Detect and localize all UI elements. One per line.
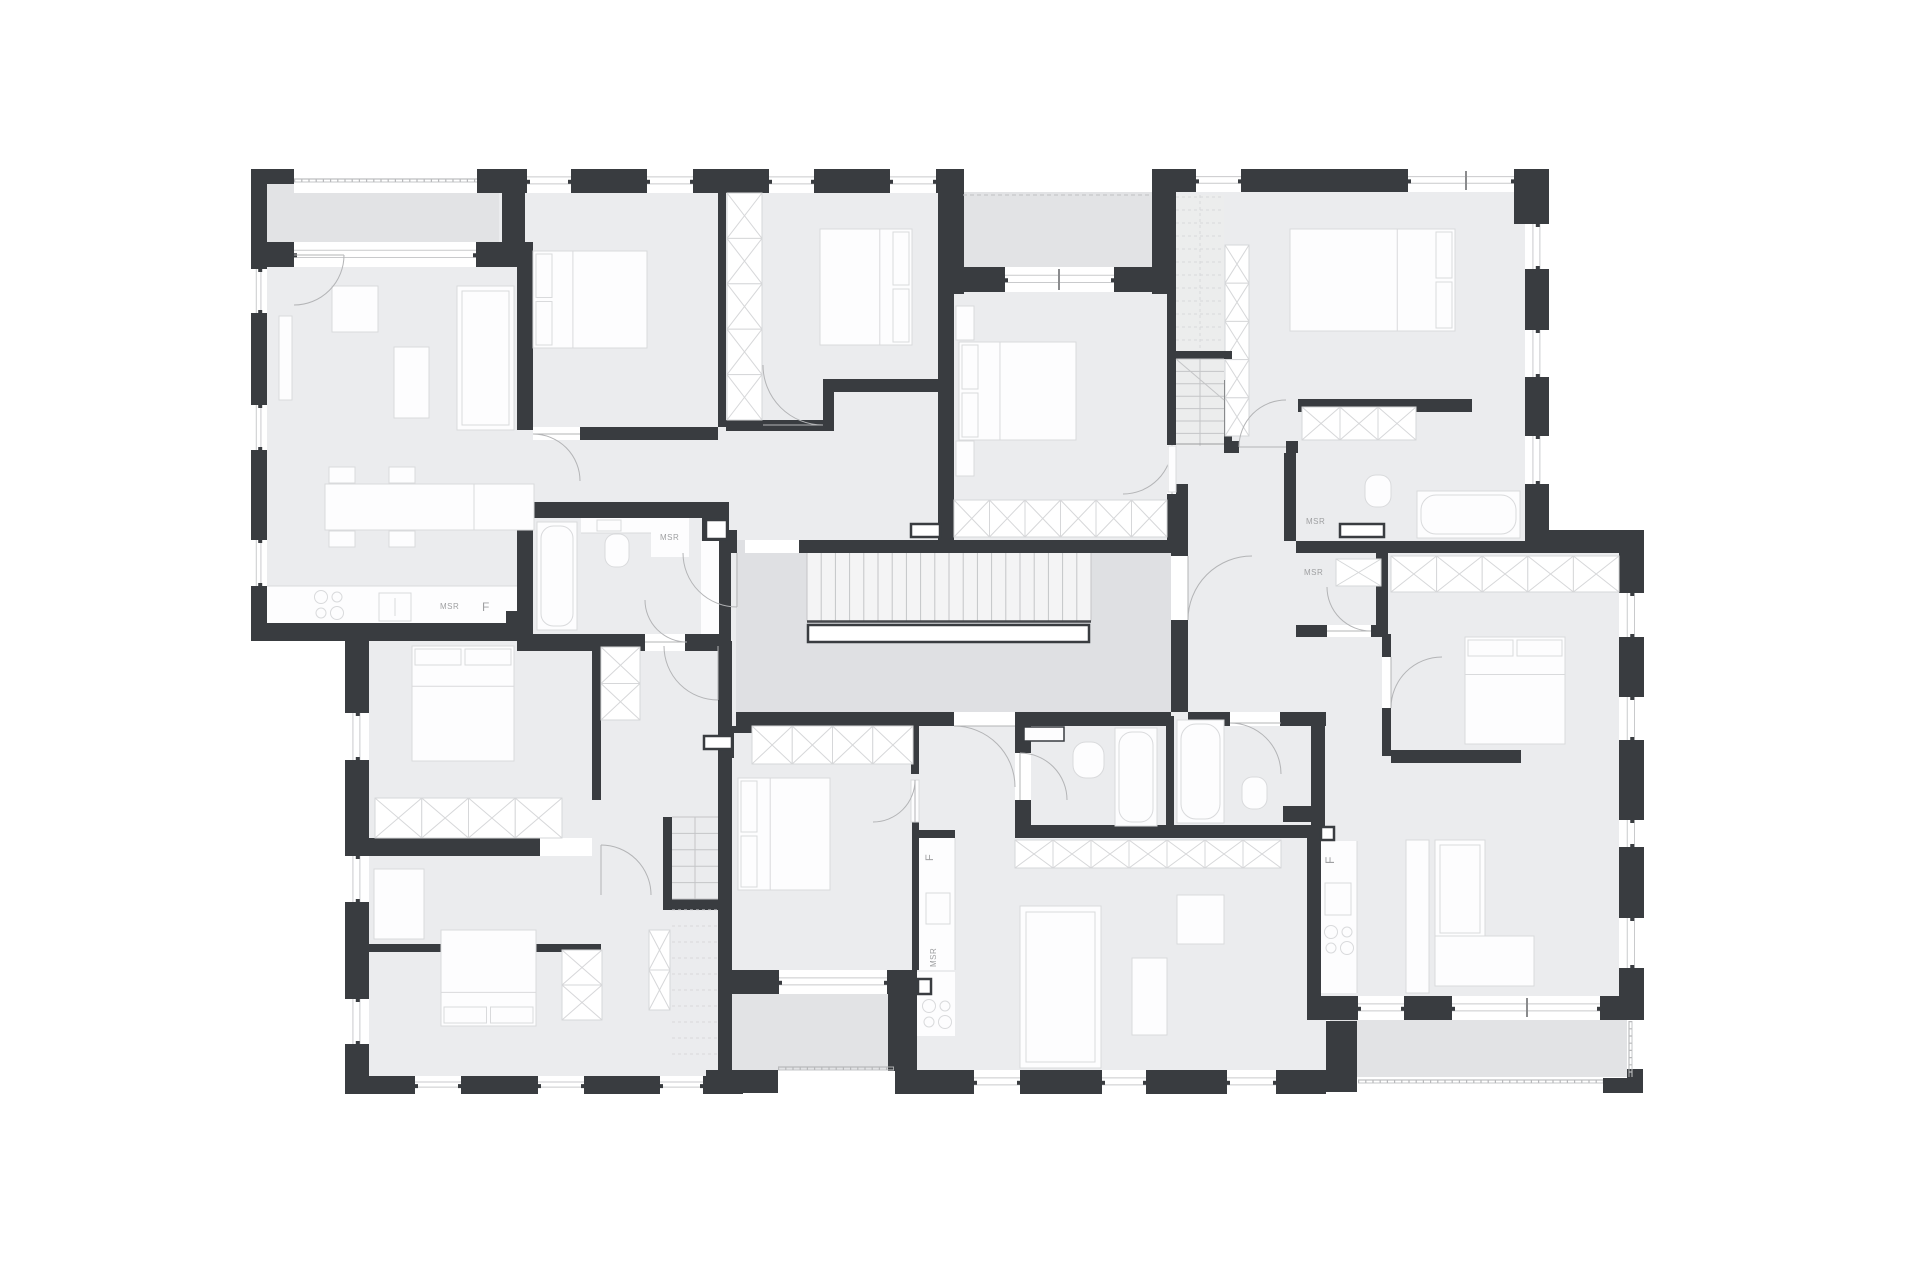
svg-text:MSR: MSR (660, 533, 679, 542)
svg-text:F: F (924, 854, 936, 861)
svg-text:F: F (1323, 856, 1337, 864)
svg-text:MSR: MSR (440, 602, 459, 611)
svg-text:MSR: MSR (1304, 568, 1323, 577)
svg-text:MSR: MSR (1306, 517, 1325, 526)
svg-text:MSR: MSR (929, 948, 938, 967)
svg-text:F: F (482, 600, 490, 614)
